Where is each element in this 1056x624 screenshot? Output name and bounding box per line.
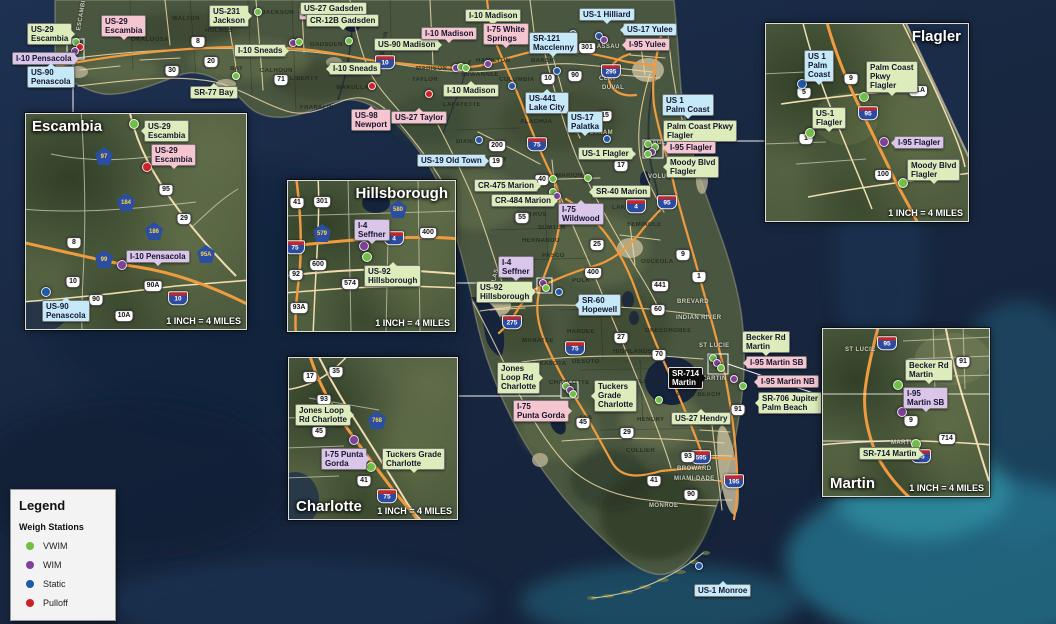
callout-text: SR-60 Hopewell bbox=[582, 296, 617, 314]
callout-label: US-29 Escambia bbox=[27, 23, 72, 45]
route-shield-600: 600 bbox=[309, 259, 327, 271]
callout-label: I-4 Seffner bbox=[354, 219, 390, 241]
callout-pointer bbox=[568, 407, 576, 415]
county-label: GADSDEN bbox=[310, 42, 343, 48]
route-shield-301: 301 bbox=[313, 196, 331, 208]
callout-label: I-95 Martin SB bbox=[903, 387, 948, 409]
callout-label: US-17 Palatka bbox=[567, 111, 603, 133]
callout-text: US-27 Gadsden bbox=[304, 4, 363, 13]
route-shield-91: 91 bbox=[731, 404, 746, 416]
callout-text: SR-714 Martin bbox=[863, 449, 916, 458]
route-shield-29: 29 bbox=[620, 427, 635, 439]
callout-text: US-90 Madison bbox=[378, 40, 435, 49]
station-dot-vwim[interactable] bbox=[644, 150, 652, 158]
callout-text: I-95 Flagler bbox=[670, 143, 712, 152]
callout-pointer bbox=[825, 128, 833, 136]
callout-label: CR-475 Marion bbox=[474, 179, 538, 192]
callout-pointer bbox=[445, 39, 453, 47]
callout-text: US-90 Penascola bbox=[46, 302, 86, 320]
inset-escambia: Escambia1 INCH = 4 MILES971841869995A952… bbox=[25, 113, 247, 330]
callout-pointer bbox=[577, 196, 585, 204]
callout-pointer bbox=[350, 411, 358, 419]
callout-text: US-1 Hilliard bbox=[583, 10, 631, 19]
station-dot-wim[interactable] bbox=[484, 60, 492, 68]
callout-label: I-10 Pensacola bbox=[12, 52, 76, 65]
callout-pointer bbox=[367, 102, 375, 110]
callout-text: I-95 Martin SB bbox=[750, 358, 803, 367]
callout-label: US-17 Yulee bbox=[623, 23, 677, 36]
route-shield-71: 71 bbox=[274, 74, 289, 86]
county-label: BROWARD bbox=[677, 466, 711, 472]
callout-text: SR-706 Jupiter Palm Beach bbox=[762, 394, 818, 412]
callout-pointer bbox=[930, 180, 938, 188]
route-shield-35: 35 bbox=[329, 366, 344, 378]
route-shield-10: 10 bbox=[168, 291, 188, 305]
callout-pointer bbox=[750, 378, 758, 386]
callout-label: SR-706 Jupiter Palm Beach bbox=[758, 392, 822, 414]
county-label: HOLMES bbox=[205, 28, 233, 34]
callout-label: US-1 Flagler bbox=[578, 147, 633, 160]
station-dot-vwim[interactable] bbox=[366, 462, 376, 472]
station-dot-pulloff[interactable] bbox=[368, 82, 376, 90]
callout-text: SR-121 Macclenny bbox=[533, 34, 574, 52]
county-label: POLK bbox=[572, 278, 590, 284]
callout-pointer bbox=[467, 77, 475, 85]
county-label: MONROE bbox=[649, 503, 678, 509]
county-label: COLLIER bbox=[626, 448, 655, 454]
callout-label: US-92 Hillsborough bbox=[476, 281, 533, 303]
inset-title: Escambia bbox=[32, 118, 102, 135]
callout-label: I-10 Madison bbox=[421, 27, 477, 40]
callout-label: SR-714 Martin bbox=[859, 447, 920, 460]
callout-text: I-95 Yulee bbox=[629, 40, 666, 49]
callout-text: SR-77 Bay bbox=[194, 88, 234, 97]
legend-item-label: Pulloff bbox=[43, 598, 68, 608]
callout-pointer bbox=[751, 399, 759, 407]
callout-pointer bbox=[410, 469, 418, 477]
county-label: OSCEOLA bbox=[641, 259, 673, 265]
station-dot-vwim[interactable] bbox=[805, 128, 815, 138]
route-shield-10: 10 bbox=[541, 73, 556, 85]
station-dot-vwim[interactable] bbox=[462, 64, 470, 72]
callout-label: US-231 Jackson bbox=[209, 5, 249, 27]
callout-pointer bbox=[659, 144, 667, 152]
county-label: SUMTER bbox=[538, 225, 566, 231]
callout-label: I-4 Seffner bbox=[498, 256, 534, 278]
callout-text: SR-714 Martin bbox=[672, 369, 699, 387]
county-label: LIBERTY bbox=[290, 76, 318, 82]
callout-pointer bbox=[120, 36, 128, 44]
callout-pointer bbox=[887, 139, 895, 147]
station-dot-vwim[interactable] bbox=[345, 37, 353, 45]
station-dot-wim[interactable] bbox=[349, 435, 359, 445]
callout-text: Palm Coast Pkwy Flagler bbox=[870, 63, 914, 90]
callout-pointer bbox=[739, 359, 747, 367]
route-shield-441: 441 bbox=[651, 280, 669, 292]
callout-label: SR-714 Martin bbox=[668, 367, 703, 389]
county-label: NASSAU bbox=[592, 44, 620, 50]
callout-label: I-10 Madison bbox=[443, 84, 499, 97]
callout-text: US-1 Flagler bbox=[816, 109, 842, 127]
callout-label: Becker Rd Martin bbox=[742, 331, 790, 353]
callout-pointer bbox=[366, 455, 374, 463]
callout-label: I-75 Punta Gorda bbox=[321, 448, 367, 470]
callout-pointer bbox=[815, 81, 823, 89]
route-shield-17: 17 bbox=[303, 371, 318, 383]
route-shield-200: 200 bbox=[488, 140, 506, 152]
route-shield-20: 20 bbox=[204, 56, 219, 68]
inset-flagler: Flagler1 INCH = 4 MILES95A1A110095US 1 P… bbox=[765, 23, 969, 222]
county-label: INDIAN RIVER bbox=[676, 315, 721, 321]
route-shield-9: 9 bbox=[904, 415, 919, 427]
station-dot-vwim[interactable] bbox=[232, 72, 240, 80]
station-dot-vwim[interactable] bbox=[893, 380, 903, 390]
callout-pointer bbox=[502, 44, 510, 52]
station-dot-static[interactable] bbox=[555, 288, 563, 296]
route-shield-295: 295 bbox=[601, 64, 621, 78]
route-shield-9: 9 bbox=[844, 73, 859, 85]
callout-text: US-19 Old Town bbox=[421, 156, 482, 165]
station-dot-static[interactable] bbox=[475, 136, 483, 144]
county-label: WALTON bbox=[172, 16, 200, 22]
route-shield-55: 55 bbox=[515, 212, 530, 224]
station-dot-pulloff[interactable] bbox=[425, 90, 433, 98]
callout-pointer bbox=[154, 262, 162, 270]
county-label: ALACHUA bbox=[520, 119, 552, 125]
route-shield-1: 1 bbox=[692, 271, 707, 283]
route-shield-95: 95 bbox=[858, 106, 878, 120]
callout-text: I-75 White Springs bbox=[487, 25, 525, 43]
route-shield-90: 90 bbox=[568, 70, 583, 82]
county-label: DIXIE bbox=[456, 139, 474, 145]
station-dot-vwim[interactable] bbox=[295, 38, 303, 46]
station-dot-vwim[interactable] bbox=[569, 390, 577, 398]
callout-label: US-1 Monroe bbox=[694, 584, 751, 597]
callout-label: US-441 Lake City bbox=[525, 92, 569, 114]
route-shield-100: 100 bbox=[874, 169, 892, 181]
inset-escambia-art bbox=[26, 114, 246, 329]
callout-text: US-441 Lake City bbox=[529, 94, 565, 112]
callout-text: US 1 Palm Coast bbox=[808, 52, 830, 79]
callout-text: US-29 Escambia bbox=[148, 122, 185, 140]
callout-label: US-90 Penascola bbox=[42, 300, 90, 322]
route-shield-91: 91 bbox=[956, 356, 971, 368]
callout-text: I-4 Seffner bbox=[358, 221, 386, 239]
county-label: FRANKLIN bbox=[300, 105, 334, 111]
legend-title: Legend bbox=[19, 498, 107, 513]
callout-pointer bbox=[603, 20, 611, 28]
route-shield-400: 400 bbox=[584, 267, 602, 279]
callout-text: I-95 Martin SB bbox=[907, 389, 944, 407]
callout-pointer bbox=[71, 30, 79, 38]
callout-pointer bbox=[587, 392, 595, 400]
county-label: CALHOUN bbox=[260, 68, 293, 74]
route-shield-10: 10 bbox=[66, 276, 81, 288]
vwim-legend-dot bbox=[26, 542, 34, 550]
callout-label: I-95 Flagler bbox=[894, 136, 944, 149]
florida-weigh-stations-map[interactable]: WALTONHOLMESJACKSONOKALOOSAGADSDENLIBERT… bbox=[0, 0, 1056, 624]
callout-text: CR-475 Marion bbox=[478, 181, 534, 190]
callout-label: US-1 Hilliard bbox=[579, 8, 635, 21]
callout-text: US-29 Escambia bbox=[31, 25, 68, 43]
station-dot-vwim[interactable] bbox=[717, 364, 725, 372]
wim-legend-dot bbox=[26, 561, 34, 569]
callout-pointer bbox=[702, 374, 710, 382]
route-shield-27: 27 bbox=[614, 332, 629, 344]
callout-pointer bbox=[697, 405, 705, 413]
inset-title: Charlotte bbox=[296, 498, 362, 515]
callout-pointer bbox=[62, 293, 70, 301]
station-dot-static[interactable] bbox=[508, 82, 516, 90]
route-shield-10A: 10A bbox=[115, 310, 134, 322]
route-shield-29: 29 bbox=[177, 213, 192, 225]
route-shield-95: 95 bbox=[159, 184, 174, 196]
station-dot-vwim[interactable] bbox=[859, 92, 869, 102]
route-shield-30: 30 bbox=[165, 65, 180, 77]
callout-text: I-75 Punta Gorda bbox=[325, 450, 363, 468]
callout-label: Tuckers Grade Charlotte bbox=[594, 380, 637, 412]
county-label: OKEECHOBEE bbox=[645, 328, 692, 334]
callout-label: SR-40 Marion bbox=[592, 185, 651, 198]
route-shield-275: 275 bbox=[502, 315, 522, 329]
callout-pointer bbox=[485, 157, 493, 165]
county-label: DUVAL bbox=[602, 85, 624, 91]
callout-label: SR-121 Macclenny bbox=[529, 32, 578, 54]
callout-pointer bbox=[888, 92, 896, 100]
callout-pointer bbox=[539, 374, 547, 382]
route-shield-70: 70 bbox=[652, 349, 667, 361]
station-dot-static[interactable] bbox=[553, 67, 561, 75]
route-shield-5: 5 bbox=[797, 87, 812, 99]
inset-flagler-art bbox=[766, 24, 968, 221]
callout-pointer bbox=[47, 59, 55, 67]
callout-label: US-90 Penascola bbox=[27, 66, 75, 88]
callout-pointer bbox=[719, 577, 727, 585]
legend-item-label: VWIM bbox=[43, 541, 68, 551]
callout-pointer bbox=[389, 258, 397, 266]
callout-label: US 1 Palm Coast bbox=[804, 50, 834, 82]
route-shield-95: 95 bbox=[877, 336, 897, 350]
callout-text: I-95 Martin NB bbox=[761, 377, 815, 386]
callout-label: Jones Loop Rd Charlotte bbox=[295, 404, 351, 426]
county-label: HENDRY bbox=[637, 417, 665, 423]
callout-text: SR-40 Marion bbox=[596, 187, 647, 196]
legend-item-static: Static bbox=[19, 579, 107, 589]
station-dot-static[interactable] bbox=[41, 287, 51, 297]
callout-label: Tuckers Grade Charlotte bbox=[382, 448, 445, 470]
callout-pointer bbox=[137, 127, 145, 135]
callout-label: I-10 Pensacola bbox=[126, 250, 190, 263]
station-dot-vwim[interactable] bbox=[542, 284, 550, 292]
callout-label: Palm Coast Pkwy Flagler bbox=[663, 120, 737, 142]
callout-label: I-10 Sneads bbox=[234, 44, 286, 57]
county-label: HAMILTON bbox=[476, 58, 510, 64]
callout-label: I-75 White Springs bbox=[483, 23, 529, 45]
callout-label: Becker Rd Martin bbox=[905, 359, 953, 381]
callout-text: CR-12B Gadsden bbox=[310, 16, 375, 25]
callout-text: US-17 Palatka bbox=[571, 113, 599, 131]
scale-note: 1 INCH = 4 MILES bbox=[909, 483, 984, 493]
inset-title: Martin bbox=[830, 475, 875, 492]
county-label: SEMINOLE bbox=[627, 222, 662, 228]
callout-text: I-10 Pensacola bbox=[130, 252, 186, 261]
callout-pointer bbox=[368, 240, 376, 248]
scale-note: 1 INCH = 4 MILES bbox=[377, 506, 452, 516]
county-label: MIAMI-DADE bbox=[674, 476, 715, 482]
legend-item-pulloff: Pulloff bbox=[19, 598, 107, 608]
inset-hillsborough: Hillsborough1 INCH = 4 MILES413014006009… bbox=[287, 180, 456, 332]
callout-text: Tuckers Grade Charlotte bbox=[386, 450, 441, 468]
callout-label: Moody Blvd Flagler bbox=[907, 159, 960, 181]
station-dot-vwim[interactable] bbox=[362, 252, 372, 262]
county-label: TAYLOR bbox=[412, 77, 438, 83]
callout-text: US-1 Flagler bbox=[582, 149, 629, 158]
callout-text: I-10 Pensacola bbox=[16, 54, 72, 63]
callout-pointer bbox=[581, 132, 589, 140]
station-dot-wim[interactable] bbox=[600, 36, 608, 44]
route-shield-92: 92 bbox=[289, 269, 304, 281]
route-shield-90: 90 bbox=[684, 489, 699, 501]
station-dot-vwim[interactable] bbox=[584, 174, 592, 182]
callout-pointer bbox=[170, 165, 178, 173]
callout-text: I-10 Sneads bbox=[333, 64, 377, 73]
route-shield-93: 93 bbox=[681, 451, 696, 463]
county-label: PALM BEACH bbox=[677, 392, 721, 398]
callout-text: US-98 Newport bbox=[355, 111, 387, 129]
callout-label: I-95 Yulee bbox=[625, 38, 670, 51]
callout-label: US-27 Hendry bbox=[671, 412, 731, 425]
route-shield-41: 41 bbox=[290, 197, 305, 209]
callout-text: Palm Coast Pkwy Flagler bbox=[667, 122, 733, 140]
callout-text: Jones Loop Rd Charlotte bbox=[501, 364, 536, 391]
county-label: OKALOOSA bbox=[131, 37, 169, 43]
callout-text: I-4 Seffner bbox=[502, 258, 530, 276]
route-shield-45: 45 bbox=[576, 417, 591, 429]
callout-label: I-10 Madison bbox=[465, 9, 521, 22]
callout-pointer bbox=[616, 26, 624, 34]
callout-pointer bbox=[532, 288, 540, 296]
route-shield-41: 41 bbox=[357, 475, 372, 487]
callout-label: Jones Loop Rd Charlotte bbox=[497, 362, 540, 394]
route-shield-41: 41 bbox=[647, 475, 662, 487]
scale-note: 1 INCH = 4 MILES bbox=[166, 316, 241, 326]
callout-text: US-90 Penascola bbox=[31, 68, 71, 86]
callout-text: US-1 Monroe bbox=[698, 586, 747, 595]
callout-pointer bbox=[322, 65, 330, 73]
callout-pointer bbox=[919, 450, 927, 458]
callout-label: US 1 Palm Coast bbox=[662, 94, 714, 116]
county-label: DESOTO bbox=[572, 359, 600, 365]
route-shield-714: 714 bbox=[938, 433, 956, 445]
callout-text: I-10 Madison bbox=[425, 29, 473, 38]
station-dot-vwim[interactable] bbox=[739, 382, 747, 390]
route-shield-75: 75 bbox=[565, 341, 585, 355]
callout-label: Moody Blvd Flagler bbox=[666, 156, 719, 178]
county-label: BREVARD bbox=[677, 299, 709, 305]
route-shield-93A: 93A bbox=[290, 302, 309, 314]
callout-text: I-10 Madison bbox=[447, 86, 495, 95]
county-label: COLUMBIA bbox=[499, 77, 535, 83]
route-shield-90A: 90A bbox=[144, 280, 163, 292]
station-dot-wim[interactable] bbox=[730, 375, 738, 383]
callout-label: US-19 Old Town bbox=[417, 154, 486, 167]
county-label: WAKULLA bbox=[336, 85, 369, 91]
callout-label: I-10 Sneads bbox=[329, 62, 381, 75]
route-shield-9: 9 bbox=[676, 249, 691, 261]
callout-text: Jones Loop Rd Charlotte bbox=[299, 406, 347, 424]
county-label: HERNANDO bbox=[522, 238, 560, 244]
county-label: JACKSON bbox=[262, 10, 294, 16]
inset-charlotte: Charlotte1 INCH = 4 MILES173593454176875… bbox=[288, 357, 458, 520]
inset-title: Hillsborough bbox=[356, 185, 449, 202]
callout-text: Tuckers Grade Charlotte bbox=[598, 382, 633, 409]
scale-note: 1 INCH = 4 MILES bbox=[888, 208, 963, 218]
callout-label: US-27 Taylor bbox=[391, 111, 447, 124]
callout-label: SR-77 Bay bbox=[190, 86, 238, 99]
callout-text: US-29 Escambia bbox=[105, 17, 142, 35]
callout-label: US-92 Hillsborough bbox=[364, 265, 421, 287]
callout-label: US-29 Escambia bbox=[151, 144, 196, 166]
route-shield-75: 75 bbox=[377, 489, 397, 503]
route-shield-301: 301 bbox=[578, 42, 596, 54]
county-label: MADISON bbox=[416, 66, 447, 72]
callout-label: I-95 Martin NB bbox=[757, 375, 819, 388]
callout-text: CR-484 Marion bbox=[495, 196, 551, 205]
station-dot-static[interactable] bbox=[695, 562, 703, 570]
route-shield-75: 75 bbox=[287, 240, 305, 254]
callout-pointer bbox=[543, 85, 551, 93]
county-label: ST LUCIE bbox=[845, 347, 876, 353]
callout-label: US-98 Newport bbox=[351, 109, 391, 131]
legend-item-label: Static bbox=[43, 579, 66, 589]
callout-pointer bbox=[549, 53, 557, 61]
station-dot-vwim[interactable] bbox=[549, 175, 557, 183]
legend-panel: Legend Weigh Stations VWIMWIMStaticPullo… bbox=[10, 489, 116, 621]
callout-text: Moody Blvd Flagler bbox=[911, 161, 956, 179]
inset-title: Flagler bbox=[912, 28, 961, 45]
callout-label: US-29 Escambia bbox=[101, 15, 146, 37]
station-dot-vwim[interactable] bbox=[655, 396, 663, 404]
callout-text: Becker Rd Martin bbox=[909, 361, 949, 379]
station-dot-static[interactable] bbox=[603, 135, 611, 143]
callout-text: US-231 Jackson bbox=[213, 7, 245, 25]
inset-martin: Martin1 INCH = 4 MILESST LUCIEMARTIN9595… bbox=[822, 328, 990, 497]
route-shield-4: 4 bbox=[626, 199, 646, 213]
legend-item-vwim: VWIM bbox=[19, 541, 107, 551]
callout-label: CR-484 Marion bbox=[491, 194, 555, 207]
route-shield-25: 25 bbox=[590, 239, 605, 251]
county-label: HARDEE bbox=[567, 329, 595, 335]
callout-pointer bbox=[75, 55, 83, 63]
county-label: MARION bbox=[556, 173, 583, 179]
callout-label: I-75 Wildwood bbox=[558, 203, 604, 225]
county-label: PASCO bbox=[542, 253, 565, 259]
legend-item-label: WIM bbox=[43, 560, 62, 570]
route-shield-8: 8 bbox=[191, 36, 206, 48]
callout-text: US-27 Hendry bbox=[675, 414, 727, 423]
callout-label: I-95 Martin SB bbox=[746, 356, 807, 369]
callout-pointer bbox=[571, 301, 579, 309]
callout-text: US-92 Hillsborough bbox=[480, 283, 529, 301]
callout-text: I-95 Flagler bbox=[898, 138, 940, 147]
callout-text: Moody Blvd Flagler bbox=[670, 158, 715, 176]
county-label: MANATEE bbox=[522, 338, 554, 344]
callout-text: I-10 Madison bbox=[469, 11, 517, 20]
county-label: ST LUCIE bbox=[699, 343, 730, 349]
callout-label: US-29 Escambia bbox=[144, 120, 189, 142]
callout-pointer bbox=[415, 104, 423, 112]
route-shield-17: 17 bbox=[614, 160, 629, 172]
